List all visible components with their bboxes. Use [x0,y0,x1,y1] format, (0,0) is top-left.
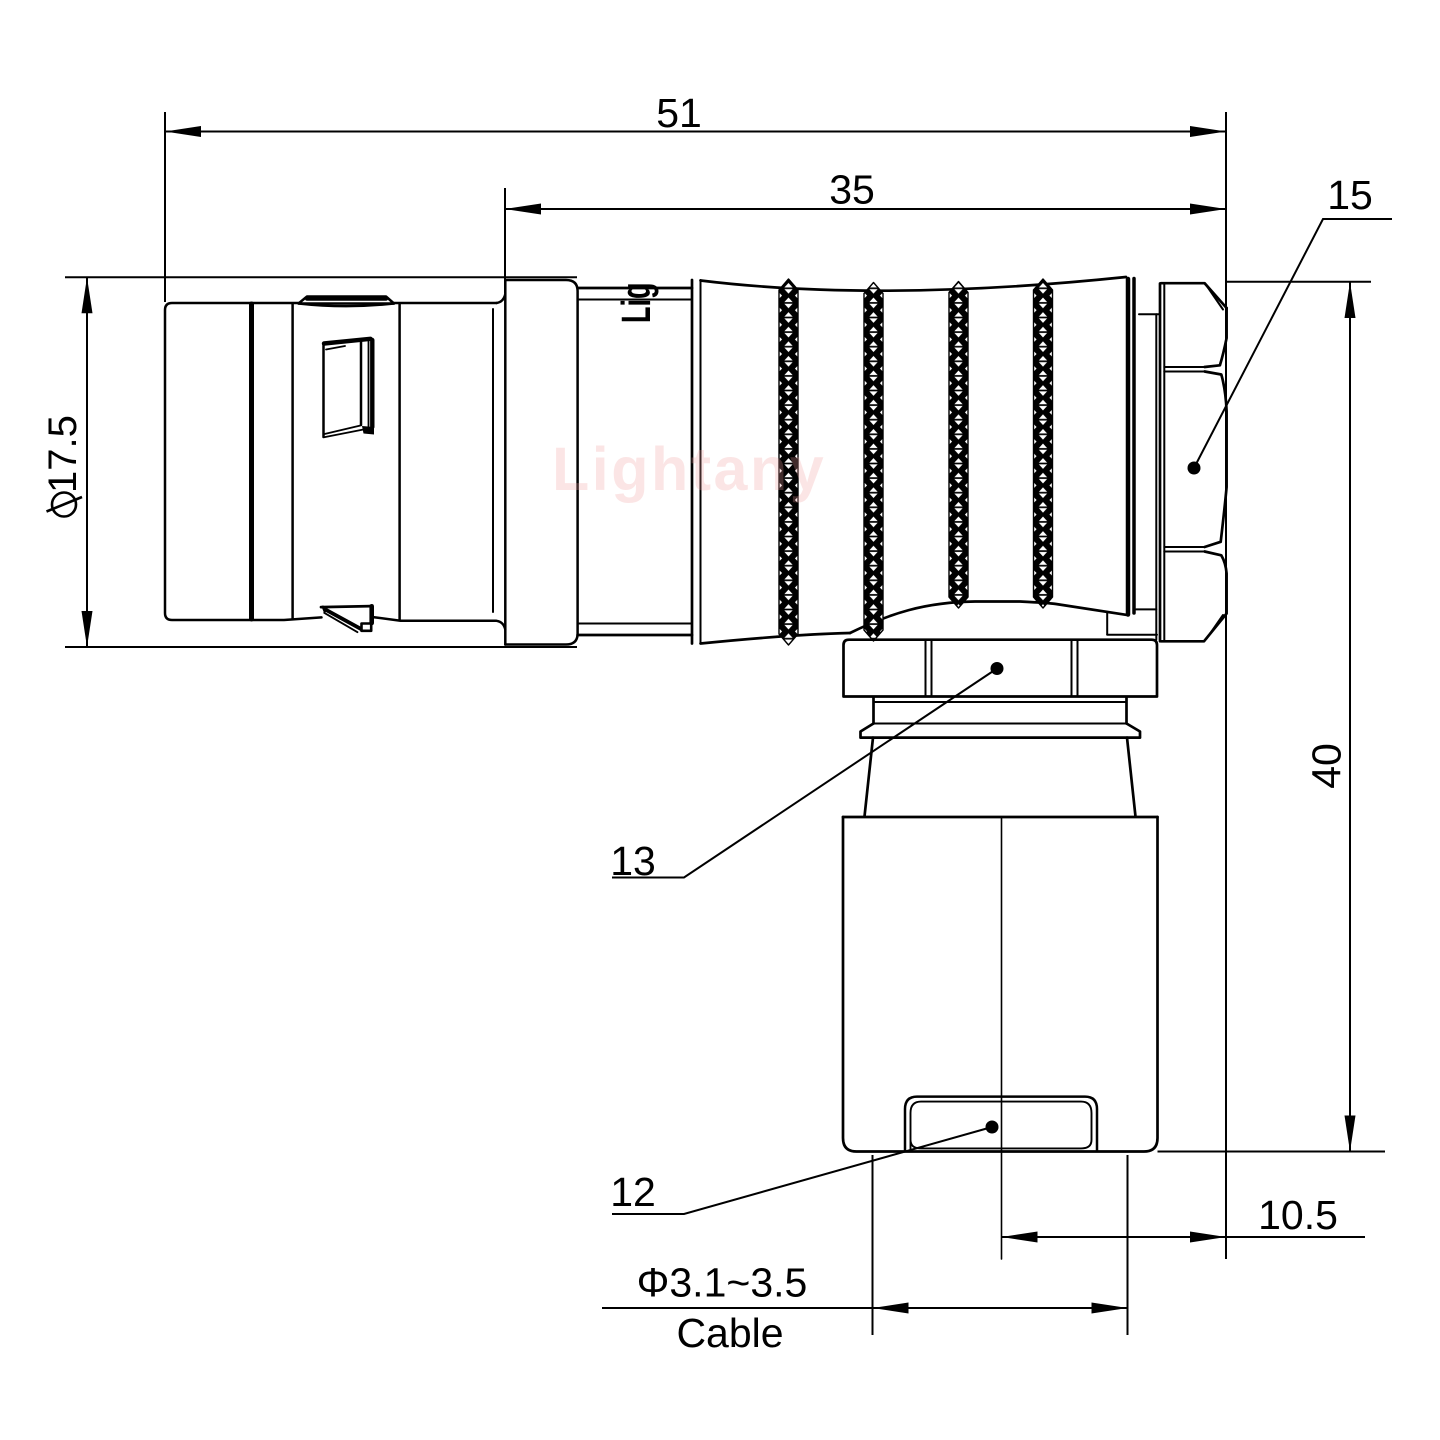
svg-text:Lightany: Lightany [552,435,826,503]
svg-text:Φ3.1~3.5: Φ3.1~3.5 [637,1260,808,1306]
svg-text:12: 12 [610,1169,656,1215]
svg-text:Cable: Cable [676,1310,783,1356]
svg-text:51: 51 [656,90,702,136]
svg-text:13: 13 [610,838,656,884]
svg-text:15: 15 [1327,172,1373,218]
svg-text:Lig: Lig [615,283,660,323]
svg-text:17.5: 17.5 [41,415,85,493]
svg-text:10.5: 10.5 [1258,1192,1338,1238]
svg-text:35: 35 [829,167,875,213]
svg-text:40: 40 [1304,743,1350,789]
